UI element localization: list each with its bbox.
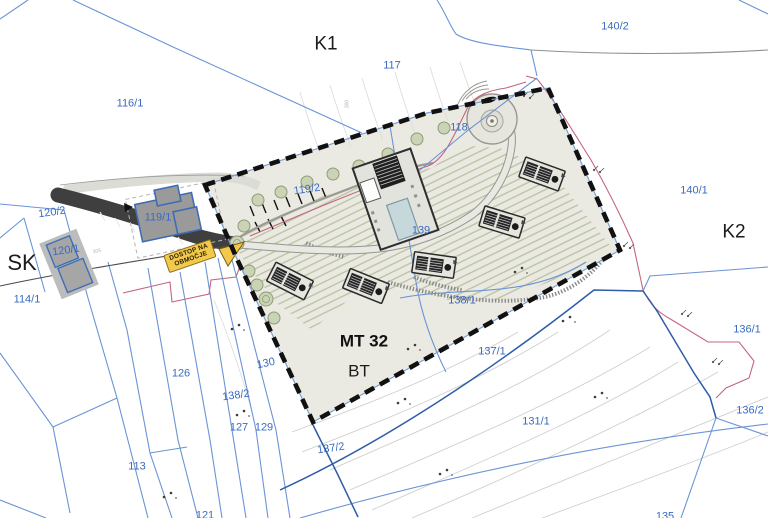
building-120-1	[39, 229, 99, 300]
site-plan-map: K1K2SKMT 32BT116/1117140/2140/1136/1136/…	[0, 0, 768, 518]
map-canvas	[0, 0, 768, 518]
